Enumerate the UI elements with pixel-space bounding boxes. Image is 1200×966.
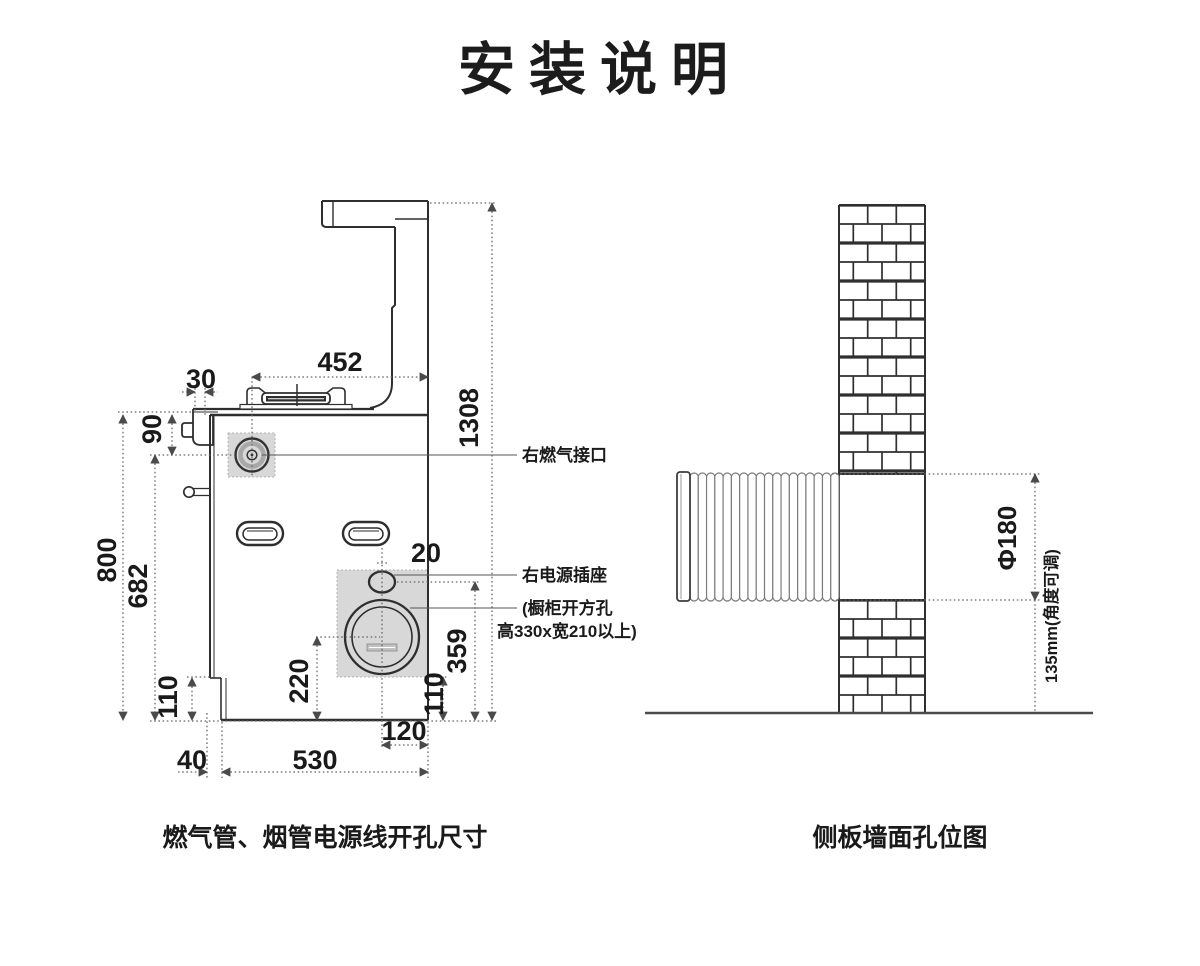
dim-110-right: 110	[419, 672, 449, 716]
burner	[240, 384, 352, 409]
flue-pipe	[690, 473, 839, 601]
dim-220: 220	[284, 658, 314, 703]
cooktop-surface	[193, 409, 428, 415]
dim-800: 800	[92, 537, 122, 582]
dim-20: 20	[411, 538, 441, 568]
label-gas-port: 右燃气接口	[522, 445, 607, 465]
dim-110-left: 110	[153, 675, 183, 719]
left-diagram-caption: 燃气管、烟管电源线开孔尺寸	[162, 823, 487, 852]
right-diagram: Φ180 135mm(角度可调) 侧板墙面孔位图	[645, 205, 1093, 852]
installation-instructions-page: 安装说明	[0, 0, 1200, 966]
flue-pipe-cap	[677, 472, 690, 601]
label-cabinet-hole-2: 高330x宽210以上)	[497, 621, 637, 641]
dim-40: 40	[177, 745, 207, 775]
dim-682: 682	[123, 563, 153, 608]
brick-wall	[839, 205, 925, 713]
dim-30: 30	[186, 364, 216, 394]
dim-530: 530	[292, 745, 337, 775]
dim-1308: 1308	[454, 388, 484, 448]
dim-359: 359	[442, 628, 472, 673]
dim-bottom-clearance: 135mm(角度可调)	[1041, 549, 1061, 683]
label-cabinet-hole-1: (橱柜开方孔	[522, 598, 613, 618]
installation-drawing: 452 30 1308 90 800 682 110 220 20 359 11…	[0, 0, 1200, 966]
right-diagram-caption: 侧板墙面孔位图	[812, 823, 987, 852]
cooktop-end-cap	[182, 409, 213, 445]
left-diagram: 452 30 1308 90 800 682 110 220 20 359 11…	[92, 201, 637, 852]
label-power-socket: 右电源插座	[522, 565, 607, 585]
handle-right	[343, 522, 389, 545]
dim-90: 90	[137, 414, 167, 444]
dim-452: 452	[317, 347, 362, 377]
dim-hole-diameter: Φ180	[992, 506, 1022, 571]
side-knob	[184, 487, 210, 497]
dim-120: 120	[381, 716, 426, 746]
handle-left	[237, 522, 283, 545]
